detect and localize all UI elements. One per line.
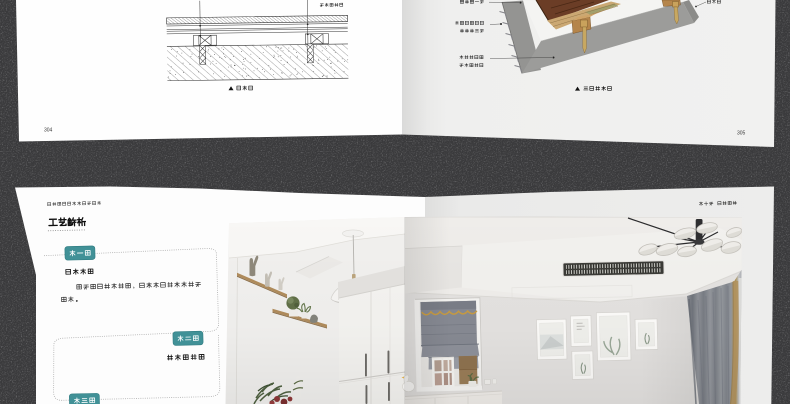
svg-text:304: 304 bbox=[44, 128, 53, 134]
svg-text:305: 305 bbox=[737, 131, 746, 137]
